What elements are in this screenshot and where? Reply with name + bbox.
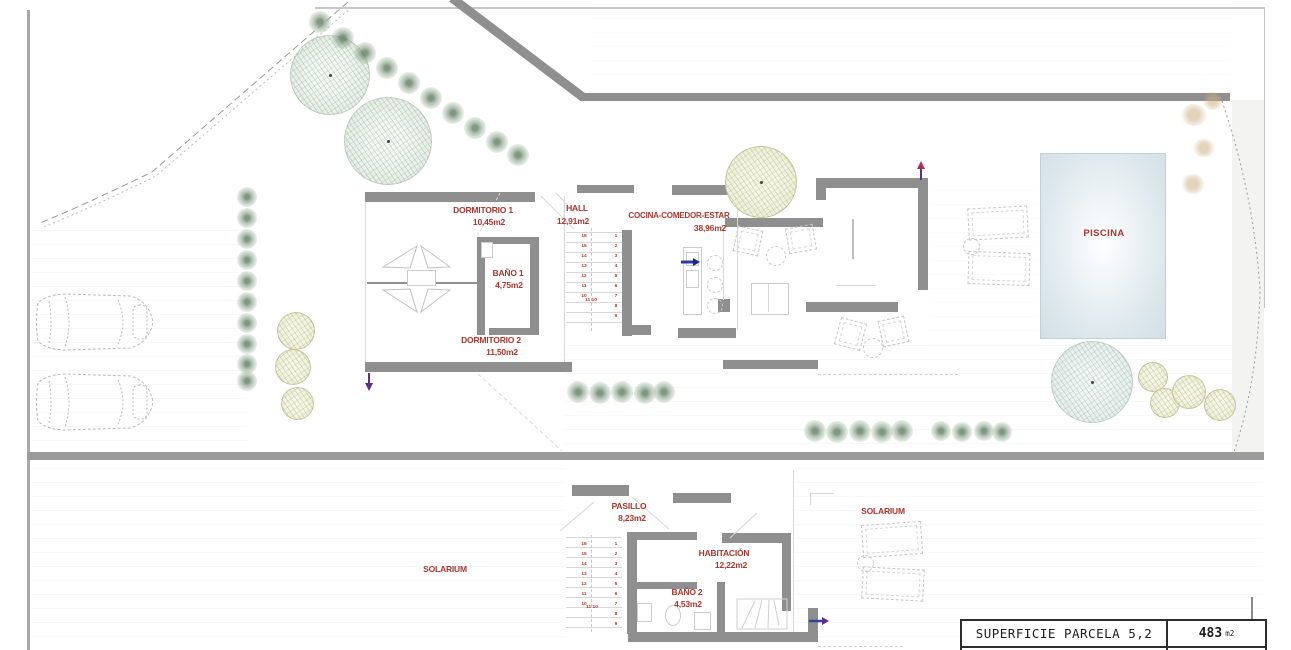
thin-line bbox=[810, 493, 811, 505]
wall-segment bbox=[365, 362, 572, 372]
stair-numbers: 1 2 3 4 5 6 7 8 9 bbox=[609, 540, 623, 630]
hedge-bush bbox=[309, 11, 331, 33]
room-label-habitacion: HABITACIÓN bbox=[699, 548, 750, 558]
terrace-chair bbox=[877, 315, 909, 347]
shrub bbox=[277, 312, 315, 350]
hedge-bush bbox=[486, 131, 508, 153]
wall-segment bbox=[673, 493, 731, 503]
sheet-top-border bbox=[315, 7, 1265, 9]
hedge-bush bbox=[464, 117, 486, 139]
hedge-bush bbox=[237, 371, 257, 391]
room-label-piscina: PISCINA bbox=[1083, 229, 1124, 239]
wall-segment bbox=[806, 302, 898, 312]
stair-numbers: 11 10 bbox=[577, 603, 607, 613]
room-area-bano1: 4,75m2 bbox=[495, 280, 523, 290]
hedge-bush bbox=[442, 102, 464, 124]
hedge-bush bbox=[237, 334, 257, 354]
garden-bush bbox=[611, 381, 633, 403]
room-area-cocina: 38,96m2 bbox=[694, 223, 726, 233]
dry-plant bbox=[1181, 174, 1205, 194]
stair-numbers: 16 15 14 13 12 11 10 bbox=[577, 540, 591, 610]
room-label-solarium-right: SOLARIUM bbox=[861, 506, 905, 516]
room-area-dormitorio1: 10,45m2 bbox=[473, 217, 505, 227]
shrub bbox=[1172, 375, 1206, 409]
garden-bush bbox=[952, 422, 972, 442]
wall-segment bbox=[782, 533, 791, 611]
plans-divider bbox=[27, 452, 1264, 460]
tree bbox=[725, 146, 797, 218]
floor-plan-sheet: 16 15 14 13 12 11 10 1 2 3 4 5 6 7 8 9 1… bbox=[0, 0, 1291, 650]
thin-line bbox=[365, 202, 366, 362]
hedge-bush bbox=[398, 72, 420, 94]
dry-plant bbox=[1203, 92, 1223, 110]
hedge-bush bbox=[237, 187, 257, 207]
side-table bbox=[963, 238, 980, 255]
thin-line bbox=[723, 227, 724, 300]
wall-segment bbox=[808, 608, 818, 642]
title-block-tick bbox=[1251, 597, 1253, 619]
title-block-value: 483 m2 bbox=[1168, 621, 1265, 646]
wall-segment bbox=[627, 325, 651, 335]
title-block-label: SUPERFICIE PARCELA 5,2 bbox=[962, 621, 1168, 646]
dry-plant bbox=[1181, 104, 1207, 126]
offsite-tint bbox=[1232, 100, 1264, 452]
sun-lounger bbox=[861, 521, 923, 558]
tree bbox=[344, 97, 432, 185]
sun-lounger bbox=[861, 566, 925, 601]
shrub bbox=[281, 387, 314, 420]
garden-bush bbox=[974, 421, 994, 441]
shrub bbox=[1204, 389, 1236, 421]
sheet-left-border bbox=[27, 10, 30, 650]
wall-segment bbox=[489, 328, 539, 335]
garden-bush bbox=[891, 420, 913, 442]
hedge-bush bbox=[420, 87, 442, 109]
hedge-bush bbox=[376, 57, 398, 79]
hedge-bush bbox=[237, 250, 257, 270]
hedge-bush bbox=[237, 271, 257, 291]
garden-bush bbox=[567, 381, 589, 403]
room-area-habitacion: 12,22m2 bbox=[715, 560, 747, 570]
room-area-hall: 12,91m2 bbox=[557, 216, 589, 226]
top-strip-hatch bbox=[590, 4, 1230, 92]
shower bbox=[694, 612, 711, 630]
solarium-left-hatch bbox=[32, 468, 565, 646]
wall-segment bbox=[918, 186, 928, 290]
room-label-dormitorio2: DORMITORIO 2 bbox=[461, 335, 521, 345]
hedge-bush bbox=[237, 229, 257, 249]
dining-table bbox=[751, 283, 789, 315]
sheet-right-border bbox=[1264, 8, 1265, 308]
room-label-bano2: BAÑO 2 bbox=[672, 587, 703, 597]
thin-line bbox=[810, 493, 834, 494]
room-area-pasillo: 8,23m2 bbox=[618, 513, 646, 523]
thin-line bbox=[793, 470, 794, 632]
room-label-dormitorio1: DORMITORIO 1 bbox=[453, 205, 513, 215]
room-area-dormitorio2: 11,50m2 bbox=[486, 347, 518, 357]
side-table bbox=[857, 555, 874, 572]
site-boundary-line bbox=[44, 7, 352, 227]
wall-segment bbox=[530, 237, 539, 335]
thin-line bbox=[737, 196, 738, 330]
garden-bush bbox=[931, 421, 951, 441]
room-label-pasillo: PASILLO bbox=[612, 501, 647, 511]
tree bbox=[1051, 341, 1133, 423]
chair bbox=[707, 277, 723, 293]
terrace-chair bbox=[733, 226, 764, 257]
title-block-number: 483 bbox=[1199, 626, 1222, 641]
wall-segment bbox=[627, 532, 697, 540]
swimming-pool bbox=[1040, 153, 1166, 339]
desk bbox=[407, 270, 436, 286]
wall-segment bbox=[717, 582, 725, 634]
entrance-arrow-down bbox=[365, 373, 373, 391]
hedge-bush bbox=[237, 292, 257, 312]
kitchen-hob bbox=[686, 270, 699, 288]
terrace-table bbox=[766, 246, 786, 266]
title-block-unit: m2 bbox=[1225, 629, 1234, 638]
garden-bush bbox=[653, 381, 675, 403]
wall-segment bbox=[816, 178, 826, 200]
room-label-cocina: COCINA-COMEDOR-ESTAR bbox=[628, 211, 729, 221]
title-block: SUPERFICIE PARCELA 5,2 483 m2 EDIFICABIL… bbox=[960, 619, 1267, 650]
garden-bush bbox=[589, 382, 611, 404]
wall-segment bbox=[580, 93, 1230, 101]
wall-segment bbox=[628, 632, 818, 642]
room-label-bano1: BAÑO 1 bbox=[493, 268, 524, 278]
bed-symbol bbox=[737, 599, 787, 629]
stair-numbers: 1 2 3 4 5 6 7 8 9 bbox=[609, 232, 623, 322]
garden-bush bbox=[871, 421, 893, 443]
wall-segment bbox=[572, 485, 629, 496]
room-area-bano2: 4,53m2 bbox=[674, 599, 702, 609]
thin-line bbox=[836, 285, 876, 286]
garden-bush bbox=[804, 420, 826, 442]
chair bbox=[707, 255, 723, 271]
hedge-bush bbox=[332, 27, 354, 49]
kitchen-sink bbox=[686, 252, 699, 266]
dashed-line bbox=[818, 374, 958, 375]
terrace-table bbox=[863, 338, 883, 358]
stair-centerline bbox=[591, 228, 592, 331]
wall-segment bbox=[622, 230, 632, 336]
title-block-row: SUPERFICIE PARCELA 5,2 483 m2 bbox=[962, 621, 1265, 648]
shrub bbox=[275, 349, 311, 385]
room-label-solarium-left: SOLARIUM bbox=[423, 564, 467, 574]
room-label-hall: HALL bbox=[566, 203, 588, 213]
dashed-line bbox=[818, 646, 903, 647]
hedge-bush bbox=[237, 313, 257, 333]
stair-numbers: 11 10 bbox=[576, 296, 606, 306]
boundary-wall-diagonal bbox=[452, 0, 584, 98]
garden-bush bbox=[826, 421, 848, 443]
dry-plant bbox=[1193, 139, 1215, 157]
wall-segment bbox=[722, 533, 790, 543]
wall-segment bbox=[723, 360, 818, 369]
wall-segment bbox=[365, 192, 535, 202]
garden-bush bbox=[849, 420, 871, 442]
stair-centerline bbox=[591, 535, 592, 632]
toilet bbox=[481, 242, 493, 258]
site-boundary-line bbox=[40, 2, 348, 223]
hedge-bush bbox=[354, 42, 376, 64]
toilet bbox=[637, 603, 652, 622]
wall-segment bbox=[816, 178, 928, 188]
hedge-bush bbox=[237, 208, 257, 228]
sun-lounger bbox=[967, 251, 1030, 286]
parking-ground-hatch bbox=[32, 230, 247, 448]
hedge-bush bbox=[507, 144, 529, 166]
table-line bbox=[768, 284, 769, 312]
garden-bush bbox=[992, 422, 1012, 442]
chair bbox=[707, 298, 723, 314]
wall-segment bbox=[678, 328, 736, 338]
wall-segment bbox=[577, 185, 634, 193]
terrace-chair bbox=[785, 224, 817, 254]
wardrobe-line bbox=[852, 219, 854, 259]
sun-lounger bbox=[967, 205, 1029, 240]
stair-numbers: 16 15 14 13 12 11 10 bbox=[577, 232, 591, 302]
